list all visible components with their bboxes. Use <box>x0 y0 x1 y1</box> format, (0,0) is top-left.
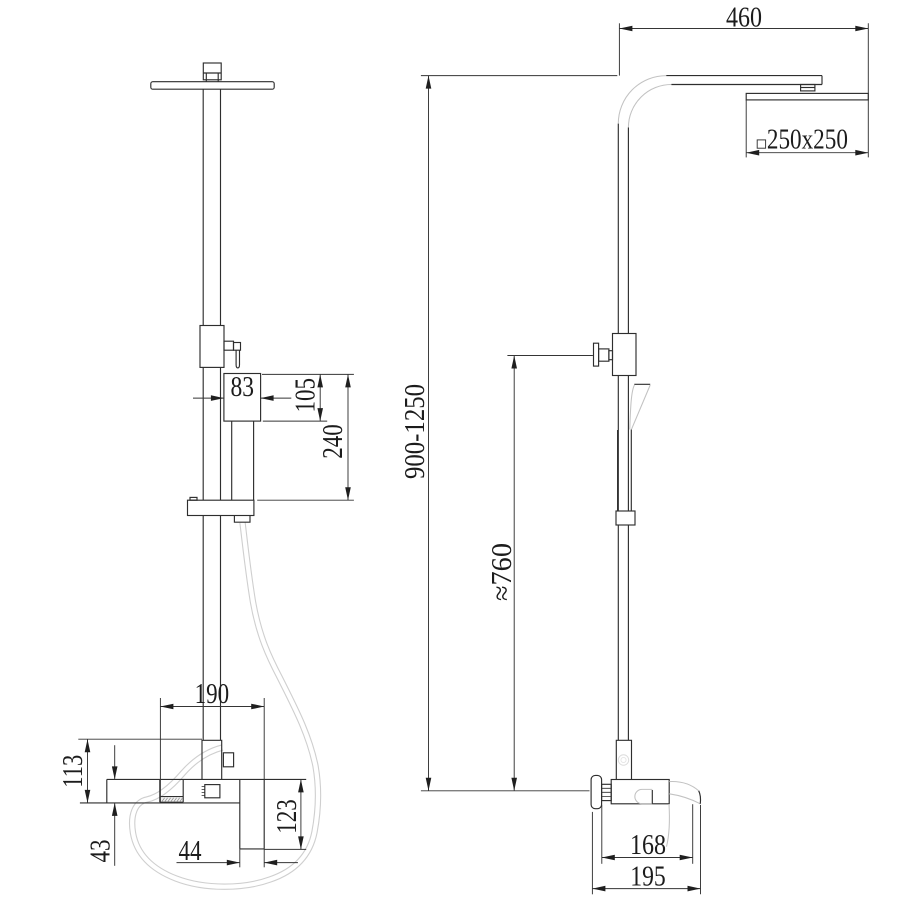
svg-text:250x250: 250x250 <box>767 124 848 155</box>
svg-text:113: 113 <box>58 755 89 788</box>
svg-text:83: 83 <box>231 372 255 403</box>
svg-text:168: 168 <box>630 830 666 861</box>
svg-text:240: 240 <box>318 424 349 459</box>
svg-text:195: 195 <box>630 861 666 892</box>
svg-text:190: 190 <box>195 679 230 710</box>
svg-text:43: 43 <box>86 840 117 863</box>
svg-text:≈760: ≈760 <box>487 543 518 601</box>
svg-text:900-1250: 900-1250 <box>400 384 431 479</box>
svg-text:105: 105 <box>290 378 321 413</box>
svg-text:123: 123 <box>272 799 303 834</box>
